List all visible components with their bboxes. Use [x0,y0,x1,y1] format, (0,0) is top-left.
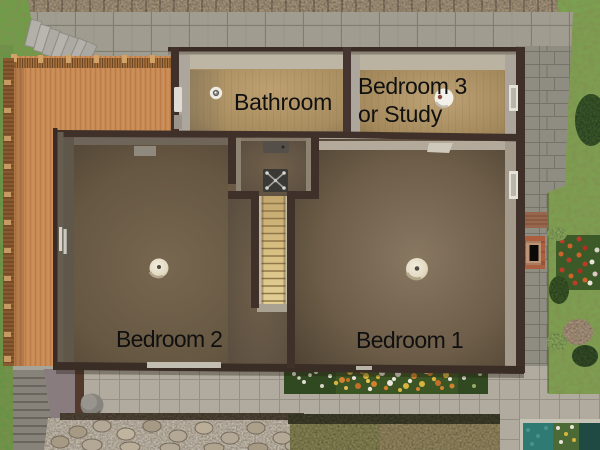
svg-text:Bedroom 2: Bedroom 2 [116,326,222,352]
svg-text:Bedroom 3: Bedroom 3 [358,73,467,99]
svg-text:Bathroom: Bathroom [234,89,332,115]
svg-text:or Study: or Study [358,101,443,127]
svg-text:Bedroom 1: Bedroom 1 [356,327,463,353]
